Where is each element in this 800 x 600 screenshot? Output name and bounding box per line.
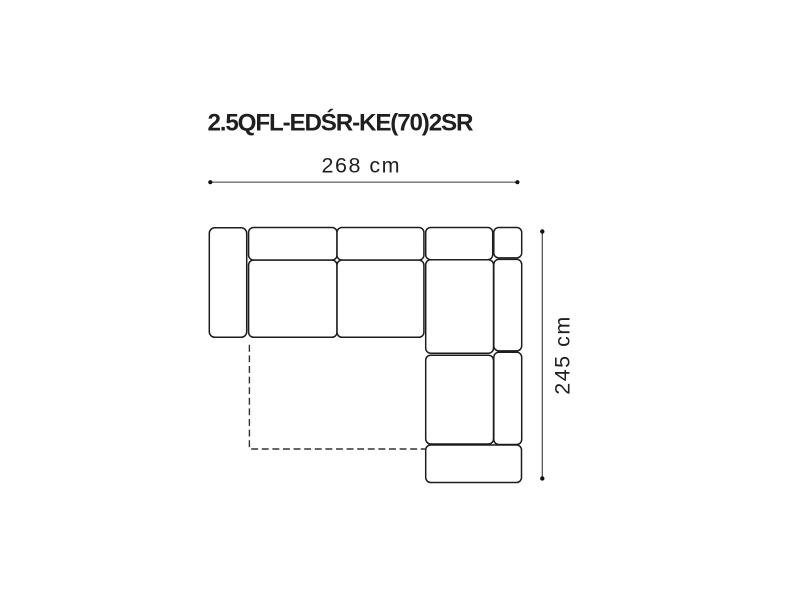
svg-text:268 cm: 268 cm: [322, 153, 402, 177]
svg-text:2.5QFL-EDŚR-KE(70)2SR: 2.5QFL-EDŚR-KE(70)2SR: [208, 109, 473, 137]
svg-text:245 cm: 245 cm: [551, 315, 575, 395]
